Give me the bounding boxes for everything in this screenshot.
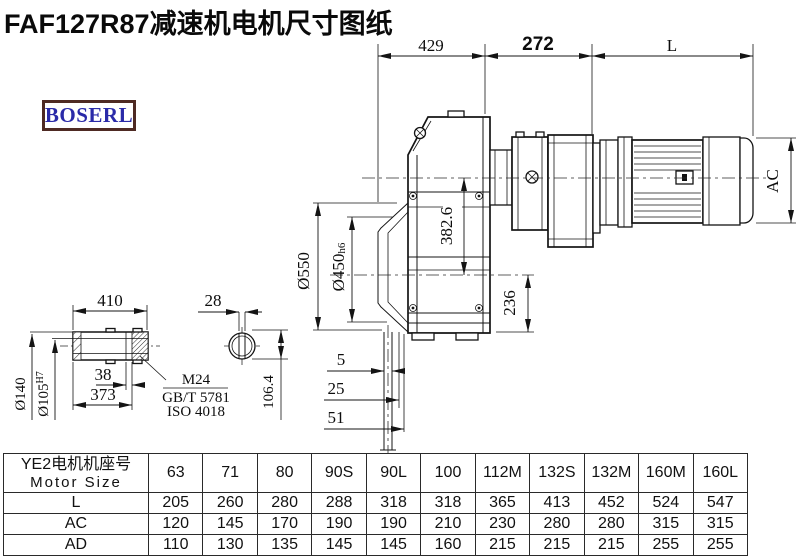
column-header: 132M	[584, 454, 638, 493]
table-cell: 318	[421, 493, 475, 514]
dim-dia105-label: Ø105H7	[35, 371, 52, 417]
column-header: 80	[257, 454, 311, 493]
motor	[618, 137, 753, 227]
dim-5-label: 5	[337, 350, 346, 369]
table-cell: 315	[639, 514, 693, 535]
table-cell: 120	[149, 514, 203, 535]
table-cell: 547	[693, 493, 747, 514]
dim-28-label: 28	[205, 291, 222, 310]
dim-dia550-label: Ø550	[294, 252, 313, 290]
table-row: AC 120 145 170 190 190 210 230 280 280 3…	[4, 514, 748, 535]
table-cell: 315	[693, 514, 747, 535]
table-cell: 280	[530, 514, 584, 535]
motor-size-table: YE2电机机座号 Motor Size 63 71 80 90S 90L 100…	[3, 453, 748, 556]
table-cell: 452	[584, 493, 638, 514]
table-cell: 215	[475, 535, 529, 556]
dim-ac-label: AC	[763, 169, 782, 193]
column-header: 90L	[366, 454, 420, 493]
table-cell: 255	[639, 535, 693, 556]
table-cell: 170	[257, 514, 311, 535]
dim-L-label: L	[667, 36, 677, 55]
column-header: 160L	[693, 454, 747, 493]
table-cell: 255	[693, 535, 747, 556]
dim-429-label: 429	[418, 36, 444, 55]
column-header: 100	[421, 454, 475, 493]
output-flange-edge	[380, 332, 404, 450]
table-cell: 110	[149, 535, 203, 556]
row-label: AD	[4, 535, 149, 556]
vent-plug-icon	[415, 128, 426, 139]
dim-373-label: 373	[90, 385, 116, 404]
dim-dia450-label: Ø450h6	[329, 242, 348, 291]
row-label: AC	[4, 514, 149, 535]
input-center-mark-icon	[526, 171, 538, 183]
table-cell: 190	[366, 514, 420, 535]
note-iso4018: ISO 4018	[167, 404, 225, 420]
dim-236: 236	[496, 275, 534, 332]
table-cell: 280	[257, 493, 311, 514]
dim-25-label: 25	[328, 379, 345, 398]
gear-unit-r87	[490, 132, 618, 247]
table-cell: 145	[203, 514, 257, 535]
table-cell: 524	[639, 493, 693, 514]
table-header-motor-size: YE2电机机座号 Motor Size	[4, 454, 149, 493]
table-cell: 215	[584, 535, 638, 556]
table-cell: 210	[421, 514, 475, 535]
table-row: L 205 260 280 288 318 318 365 413 452 52…	[4, 493, 748, 514]
dim-106-label: 106.4	[261, 375, 277, 409]
table-cell: 205	[149, 493, 203, 514]
table-cell: 260	[203, 493, 257, 514]
column-header: 160M	[639, 454, 693, 493]
dim-410-label: 410	[97, 291, 123, 310]
dim-38-label: 38	[95, 365, 112, 384]
table-cell: 130	[203, 535, 257, 556]
dim-dia450: Ø450h6	[329, 217, 393, 322]
table-row: AD 110 130 135 145 145 160 215 215 215 2…	[4, 535, 748, 556]
thread-note: M24 GB/T 5781 ISO 4018	[140, 356, 230, 420]
dim-236-label: 236	[500, 290, 519, 316]
table-cell: 365	[475, 493, 529, 514]
table-cell: 215	[530, 535, 584, 556]
hollow-shaft-detail: 410 38 373 Ø140 Ø105H7 M24 GB/T 5781 IS	[13, 291, 230, 420]
column-header: 90S	[312, 454, 366, 493]
motor-end-cap	[740, 138, 753, 223]
table-cell: 145	[366, 535, 420, 556]
header-en: Motor Size	[4, 474, 148, 492]
table-cell: 280	[584, 514, 638, 535]
column-header: 112M	[475, 454, 529, 493]
mounting-flange	[378, 203, 408, 332]
row-label: L	[4, 493, 149, 514]
column-header: 71	[203, 454, 257, 493]
header-cn: YE2电机机座号	[4, 455, 148, 474]
column-header: 132S	[530, 454, 584, 493]
table-cell: 135	[257, 535, 311, 556]
table-cell: 190	[312, 514, 366, 535]
table-cell: 145	[312, 535, 366, 556]
dim-272-label: 272	[522, 34, 554, 55]
dim-ac: AC	[756, 138, 796, 223]
dim-51-label: 51	[328, 408, 345, 427]
note-m24: M24	[182, 372, 211, 388]
table-cell: 288	[312, 493, 366, 514]
dim-dia140-label: Ø140	[13, 377, 29, 410]
table-cell: 230	[475, 514, 529, 535]
column-header: 63	[149, 454, 203, 493]
table-cell: 160	[421, 535, 475, 556]
dim-382-label: 382.6	[437, 207, 456, 245]
table-cell: 318	[366, 493, 420, 514]
table-cell: 413	[530, 493, 584, 514]
drawing-sheet: FAF127R87减速机电机尺寸图纸 BOSERL	[0, 0, 800, 557]
